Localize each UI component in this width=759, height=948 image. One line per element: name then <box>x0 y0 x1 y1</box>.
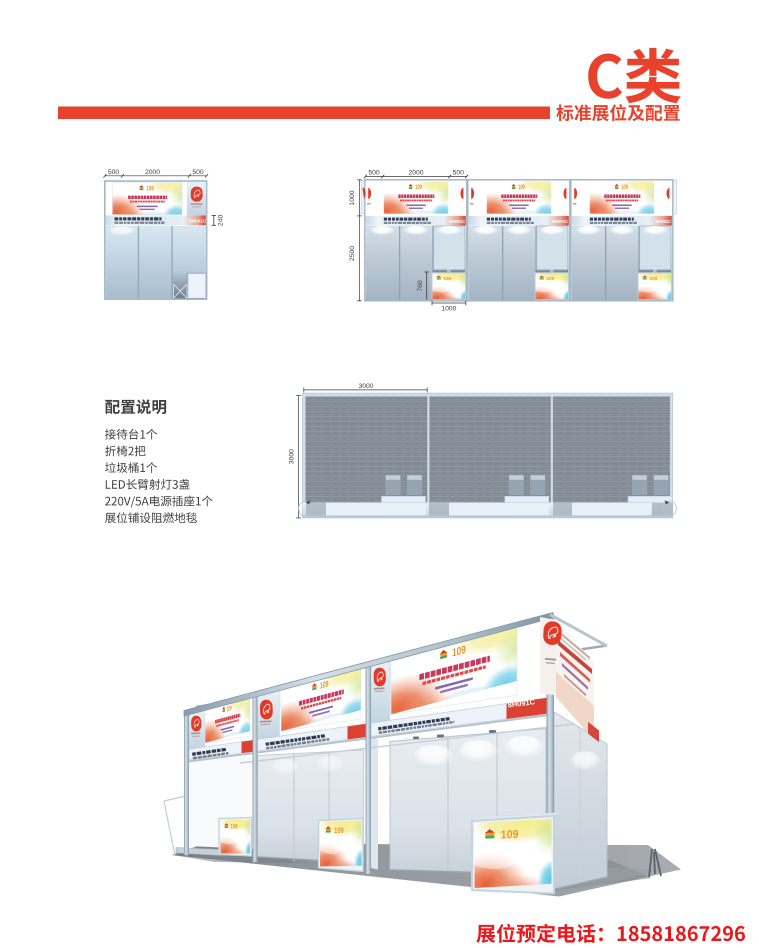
svg-text:500: 500 <box>368 169 380 176</box>
svg-text:3000: 3000 <box>358 383 373 390</box>
svg-text:2500: 2500 <box>349 246 356 261</box>
svg-text:240: 240 <box>218 215 225 227</box>
svg-text:2000: 2000 <box>145 169 160 176</box>
svg-text:8H091C: 8H091C <box>552 219 569 224</box>
svg-text:500: 500 <box>108 169 120 176</box>
svg-text:500: 500 <box>192 169 204 176</box>
svg-text:8H091C: 8H091C <box>189 219 207 224</box>
svg-text:1000: 1000 <box>349 190 356 205</box>
svg-text:2000: 2000 <box>408 169 423 176</box>
svg-text:500: 500 <box>453 169 465 176</box>
svg-text:8H091C: 8H091C <box>655 219 672 224</box>
svg-text:3000: 3000 <box>289 449 296 464</box>
svg-text:1000: 1000 <box>441 306 456 313</box>
svg-text:8H091C: 8H091C <box>449 219 466 224</box>
svg-text:760: 760 <box>417 280 424 292</box>
